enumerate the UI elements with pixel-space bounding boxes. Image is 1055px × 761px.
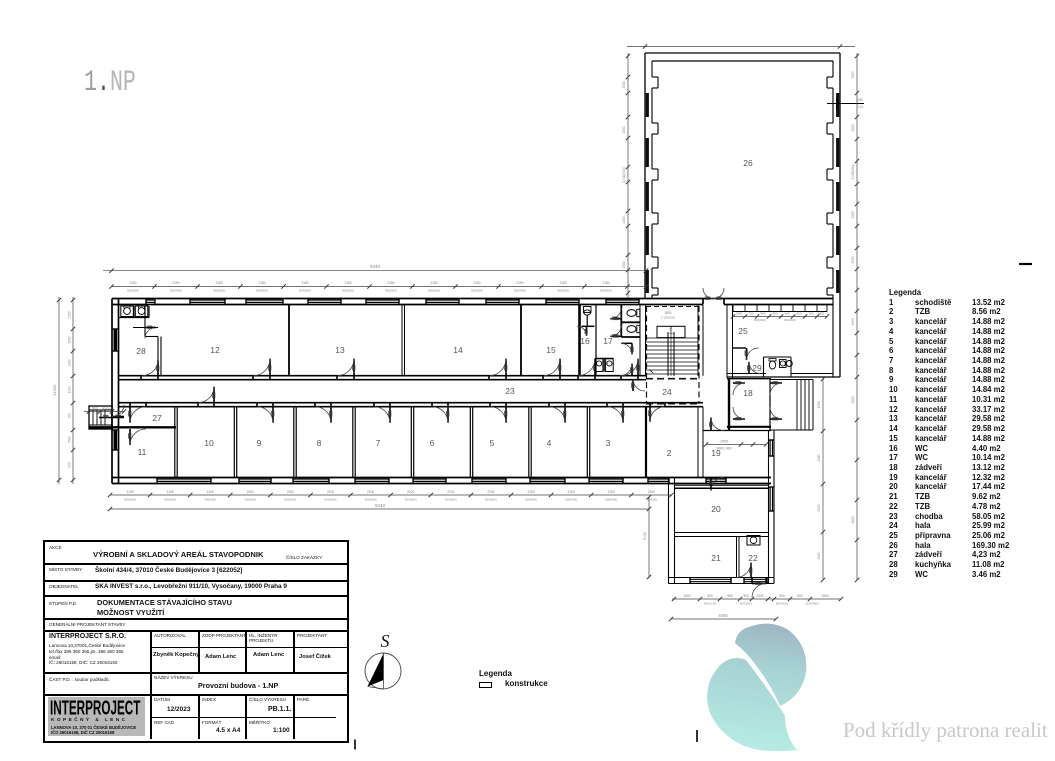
svg-text:900(900): 900(900) [385, 289, 397, 293]
svg-text:2150: 2150 [301, 281, 308, 285]
svg-text:1400: 1400 [756, 594, 763, 598]
svg-text:2150: 2150 [68, 311, 72, 318]
svg-text:750: 750 [68, 413, 72, 419]
svg-text:22: 22 [748, 553, 758, 563]
svg-text:1500: 1500 [68, 336, 72, 343]
svg-text:2020: 2020 [817, 504, 821, 511]
svg-text:26: 26 [743, 158, 753, 168]
svg-text:2150: 2150 [473, 281, 480, 285]
svg-text:1500: 1500 [851, 318, 855, 325]
svg-text:11: 11 [138, 447, 147, 457]
svg-text:2150: 2150 [258, 281, 265, 285]
svg-text:2150: 2150 [516, 281, 523, 285]
svg-text:2100: 2100 [407, 490, 414, 494]
svg-text:23: 23 [505, 386, 515, 396]
svg-text:2100: 2100 [608, 490, 615, 494]
svg-text:1200: 1200 [68, 386, 72, 393]
svg-text:2100: 2100 [648, 490, 655, 494]
svg-text:900(900): 900(900) [428, 289, 440, 293]
svg-text:2500: 2500 [851, 71, 855, 78]
svg-text:1500: 1500 [821, 594, 828, 598]
svg-text:2150: 2150 [344, 281, 351, 285]
svg-text:900(900): 900(900) [127, 289, 139, 293]
svg-text:2100: 2100 [247, 490, 254, 494]
svg-text:900(900): 900(900) [244, 498, 256, 502]
svg-text:1: 1 [669, 326, 674, 336]
svg-text:600: 600 [797, 594, 803, 598]
svg-text:900: 900 [796, 312, 801, 316]
svg-text:900/1 900: 900/1 900 [716, 447, 731, 451]
svg-text:900(900): 900(900) [471, 289, 483, 293]
svg-text:2100: 2100 [287, 490, 294, 494]
svg-text:25: 25 [738, 326, 748, 336]
svg-text:17: 17 [603, 336, 613, 346]
svg-text:2150: 2150 [602, 281, 609, 285]
svg-text:1500: 1500 [817, 401, 821, 408]
svg-text:2 100(900): 2 100(900) [661, 316, 676, 320]
svg-text:14: 14 [453, 345, 463, 355]
svg-text:900/2020: 900/2020 [740, 602, 753, 606]
svg-text:2150: 2150 [172, 281, 179, 285]
svg-text:900(900): 900(900) [213, 289, 225, 293]
svg-text:8: 8 [317, 438, 322, 448]
svg-text:6: 6 [430, 438, 435, 448]
svg-text:2500: 2500 [622, 81, 626, 88]
svg-text:5: 5 [490, 438, 495, 448]
svg-text:900: 900 [779, 594, 785, 598]
svg-text:900(900): 900(900) [324, 498, 336, 502]
svg-text:900(900): 900(900) [124, 498, 136, 502]
svg-text:900(900): 900(900) [514, 289, 526, 293]
svg-text:13: 13 [335, 345, 345, 355]
svg-text:1500: 1500 [622, 126, 626, 133]
svg-text:1300: 1300 [68, 359, 72, 366]
svg-text:3 100(900): 3 100(900) [622, 167, 626, 182]
svg-text:900(900): 900(900) [342, 289, 354, 293]
svg-text:2100: 2100 [447, 490, 454, 494]
svg-text:2100: 2100 [487, 490, 494, 494]
svg-text:600: 600 [784, 312, 789, 316]
svg-text:900: 900 [707, 594, 713, 598]
svg-text:16: 16 [580, 336, 590, 346]
svg-text:29: 29 [752, 363, 762, 373]
svg-text:4: 4 [547, 438, 552, 448]
svg-text:3: 3 [606, 438, 611, 448]
svg-text:900(900): 900(900) [299, 289, 311, 293]
svg-text:2150: 2150 [215, 281, 222, 285]
svg-text:2150: 2150 [387, 281, 394, 285]
svg-text:900/2020: 900/2020 [776, 602, 789, 606]
svg-text:900(900): 900(900) [365, 498, 377, 502]
svg-text:2.10: 2.10 [857, 105, 864, 109]
svg-text:1800: 1800 [818, 312, 825, 316]
svg-text:900(900): 900(900) [600, 289, 612, 293]
svg-text:900/1100: 900/1100 [704, 602, 717, 606]
svg-text:2150: 2150 [430, 281, 437, 285]
svg-text:2400: 2400 [683, 594, 690, 598]
svg-text:2150: 2150 [559, 281, 566, 285]
svg-text:11550: 11550 [52, 384, 57, 396]
svg-text:180: 180 [857, 98, 863, 102]
svg-text:900(900): 900(900) [605, 498, 617, 502]
svg-text:900: 900 [743, 594, 749, 598]
svg-text:9440: 9440 [375, 503, 386, 508]
svg-text:27: 27 [152, 413, 162, 423]
svg-text:900(900): 900(900) [164, 498, 176, 502]
svg-text:2100: 2100 [207, 490, 214, 494]
svg-text:900: 900 [68, 462, 72, 468]
svg-text:9440: 9440 [370, 264, 381, 269]
svg-text:2100(900): 2100(900) [805, 602, 819, 606]
svg-text:2100: 2100 [167, 490, 174, 494]
svg-text:900(900): 900(900) [754, 318, 766, 322]
svg-text:1500: 1500 [622, 261, 626, 268]
svg-text:900: 900 [760, 312, 765, 316]
svg-text:4600: 4600 [851, 516, 855, 523]
svg-text:1800: 1800 [664, 311, 671, 315]
svg-text:900(900): 900(900) [204, 498, 216, 502]
svg-text:1500: 1500 [851, 124, 855, 131]
svg-text:750: 750 [748, 312, 753, 316]
svg-text:1500: 1500 [851, 256, 855, 263]
svg-text:1500: 1500 [851, 396, 855, 403]
svg-text:900(900): 900(900) [170, 289, 182, 293]
svg-text:750: 750 [808, 312, 813, 316]
svg-text:900(900): 900(900) [525, 498, 537, 502]
svg-text:6.00: 6.00 [642, 531, 647, 540]
svg-text:900(900): 900(900) [557, 289, 569, 293]
svg-text:2100: 2100 [568, 490, 575, 494]
svg-text:21: 21 [711, 553, 721, 563]
svg-text:1500: 1500 [817, 552, 821, 559]
svg-text:2100: 2100 [327, 490, 334, 494]
svg-text:900(900): 900(900) [256, 289, 268, 293]
svg-text:900/1970: 900/1970 [102, 407, 115, 411]
svg-text:2200: 2200 [622, 216, 626, 223]
svg-text:28: 28 [136, 346, 146, 356]
svg-text:7: 7 [376, 438, 381, 448]
svg-text:900(900): 900(900) [565, 498, 577, 502]
svg-text:2150: 2150 [129, 281, 136, 285]
svg-text:900: 900 [92, 407, 98, 411]
svg-text:S: S [381, 631, 390, 651]
svg-text:3 100(900): 3 100(900) [851, 164, 855, 179]
svg-text:7500: 7500 [68, 436, 72, 443]
svg-text:900(900): 900(900) [645, 498, 657, 502]
svg-text:950: 950 [727, 594, 733, 598]
svg-text:12: 12 [210, 345, 220, 355]
svg-text:15: 15 [546, 345, 556, 355]
svg-text:1500: 1500 [720, 440, 728, 444]
svg-text:2100: 2100 [367, 490, 374, 494]
svg-text:2100: 2100 [527, 490, 534, 494]
svg-text:2200: 2200 [851, 211, 855, 218]
svg-text:10: 10 [204, 438, 214, 448]
svg-text:18: 18 [743, 388, 753, 398]
svg-text:1500: 1500 [736, 312, 743, 316]
svg-text:1100: 1100 [817, 454, 821, 461]
svg-text:24: 24 [662, 387, 672, 397]
svg-text:900(900): 900(900) [284, 498, 296, 502]
svg-text:900(900): 900(900) [784, 318, 796, 322]
svg-text:2: 2 [667, 448, 672, 458]
svg-text:20: 20 [711, 504, 721, 514]
svg-text:900: 900 [772, 312, 777, 316]
svg-text:9: 9 [257, 438, 262, 448]
svg-text:2100: 2100 [126, 490, 133, 494]
svg-text:900(900): 900(900) [485, 498, 497, 502]
svg-text:900(900): 900(900) [405, 498, 417, 502]
svg-text:900(900): 900(900) [445, 498, 457, 502]
